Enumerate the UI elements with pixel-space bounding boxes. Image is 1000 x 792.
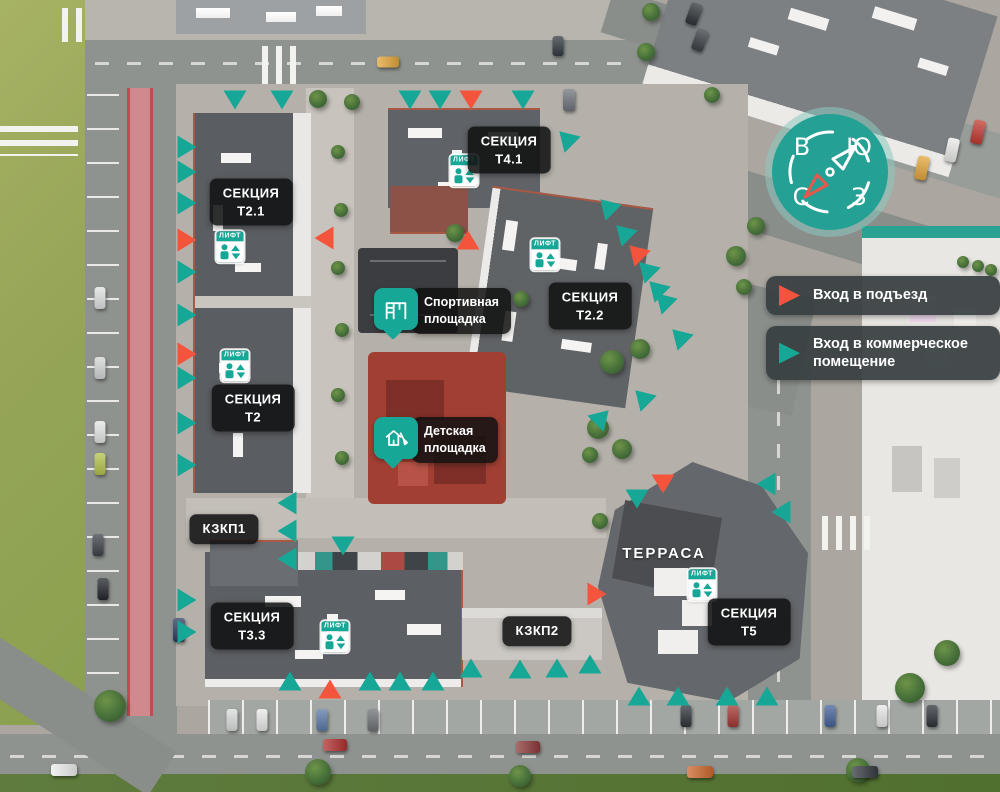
compass-letter-west: З (851, 183, 866, 211)
up-down-arrows-icon (703, 583, 712, 597)
person-icon (225, 364, 233, 379)
section-label-kzkp2[interactable]: КЗКП2 (502, 616, 571, 646)
commercial-entrance-marker (429, 91, 452, 110)
entrance-marker (315, 227, 334, 250)
commercial-entrance-marker (399, 91, 422, 110)
lift-badge-label: ЛИФТ (689, 569, 716, 579)
teal-triangle-icon (779, 343, 800, 364)
commercial-entrance-marker (757, 473, 776, 496)
person-icon (454, 169, 462, 184)
kids-ground-label-line2: площадка (424, 440, 486, 457)
lift-badge-label: ЛИФТ (322, 621, 349, 631)
section-label-t2[interactable]: СЕКЦИЯТ2 (212, 384, 295, 431)
entrance-marker (588, 583, 607, 606)
commercial-entrance-marker (271, 91, 294, 110)
person-icon (692, 583, 700, 598)
commercial-entrance-marker (512, 91, 535, 110)
residential-site-plan: ЛИФТЛИФТЛИФТЛИФТЛИФТЛИФТ СЕКЦИЯТ2.1СЕКЦИ… (0, 0, 1000, 792)
commercial-entrance-marker (756, 687, 779, 706)
kids-ground-callout[interactable]: Детская площадка (374, 417, 498, 463)
commercial-entrance-marker (716, 687, 739, 706)
person-icon (535, 253, 543, 268)
commercial-entrance-marker (772, 501, 791, 524)
commercial-entrance-marker (608, 217, 638, 247)
commercial-entrance-marker (178, 621, 197, 644)
compass-letter-east: В (794, 133, 810, 161)
kids-ground-label-line1: Детская (424, 423, 486, 440)
section-label-t5[interactable]: СЕКЦИЯТ5 (708, 598, 791, 645)
lift-badge: ЛИФТ (689, 569, 716, 600)
compass-rose: В Ю С З (763, 105, 897, 239)
commercial-entrance-marker (551, 123, 581, 153)
commercial-entrance-marker (278, 548, 297, 571)
commercial-entrance-marker (627, 382, 657, 412)
sport-ground-callout[interactable]: Спортивная площадка (374, 288, 511, 334)
person-icon (220, 245, 228, 260)
lift-badge: ЛИФТ (222, 350, 249, 381)
legend-entrance-label: Вход в подъезд (813, 286, 927, 304)
person-icon (325, 635, 333, 650)
section-label-t2-2[interactable]: СЕКЦИЯТ2.2 (549, 282, 632, 329)
section-label-t3-3[interactable]: СЕКЦИЯТ3.3 (211, 602, 294, 649)
entrance-marker (178, 343, 197, 366)
commercial-entrance-marker (278, 492, 297, 515)
section-label-t4-1[interactable]: СЕКЦИЯТ4.1 (468, 126, 551, 173)
entrance-marker (319, 680, 342, 699)
entrance-marker (178, 229, 197, 252)
commercial-entrance-marker (178, 136, 197, 159)
commercial-entrance-marker (178, 589, 197, 612)
entrance-marker (652, 475, 675, 494)
lift-badge-label: ЛИФТ (532, 239, 559, 249)
commercial-entrance-marker (667, 687, 690, 706)
lift-badge-label: ЛИФТ (217, 231, 244, 241)
legend-commercial-label: Вход в коммерческое помещение (813, 335, 982, 371)
commercial-entrance-marker (546, 659, 569, 678)
commercial-entrance-marker (509, 660, 532, 679)
map-legend: Вход в подъезд Вход в коммерческое помещ… (766, 276, 1000, 380)
commercial-entrance-marker (460, 659, 483, 678)
commercial-entrance-marker (359, 672, 382, 691)
commercial-entrance-marker (332, 537, 355, 556)
commercial-entrance-marker (178, 192, 197, 215)
entrance-marker (460, 91, 483, 110)
commercial-entrance-marker (579, 655, 602, 674)
commercial-entrance-marker (664, 321, 694, 351)
commercial-entrance-marker (178, 412, 197, 435)
section-label-kzkp1[interactable]: КЗКП1 (189, 514, 258, 544)
commercial-entrance-marker (628, 687, 651, 706)
kids-ground-icon (374, 417, 418, 459)
commercial-entrance-marker (422, 672, 445, 691)
commercial-entrance-marker (389, 672, 412, 691)
red-triangle-icon (779, 285, 800, 306)
commercial-entrance-marker (178, 304, 197, 327)
legend-item-entrance: Вход в подъезд (766, 276, 1000, 315)
commercial-entrance-marker (626, 490, 649, 509)
legend-item-commercial: Вход в коммерческое помещение (766, 326, 1000, 380)
up-down-arrows-icon (236, 364, 245, 378)
lift-badge: ЛИФТ (217, 231, 244, 262)
section-label-terrace: ТЕРРАСА (609, 538, 719, 570)
lift-badge: ЛИФТ (322, 621, 349, 652)
commercial-entrance-marker (178, 161, 197, 184)
commercial-entrance-marker (178, 261, 197, 284)
up-down-arrows-icon (336, 635, 345, 649)
lift-badge: ЛИФТ (532, 239, 559, 270)
commercial-entrance-marker (178, 454, 197, 477)
up-down-arrows-icon (546, 253, 555, 267)
sport-ground-label-line2: площадка (424, 311, 499, 328)
commercial-entrance-marker (278, 520, 297, 543)
commercial-entrance-marker (279, 672, 302, 691)
commercial-entrance-marker (224, 91, 247, 110)
sport-ground-label-line1: Спортивная (424, 294, 499, 311)
entrance-marker (457, 231, 480, 250)
commercial-entrance-marker (592, 191, 622, 221)
lift-badge-label: ЛИФТ (222, 350, 249, 360)
section-label-t2-1[interactable]: СЕКЦИЯТ2.1 (210, 178, 293, 225)
commercial-entrance-marker (587, 402, 617, 432)
commercial-entrance-marker (178, 367, 197, 390)
up-down-arrows-icon (231, 245, 240, 259)
sport-ground-icon (374, 288, 418, 330)
